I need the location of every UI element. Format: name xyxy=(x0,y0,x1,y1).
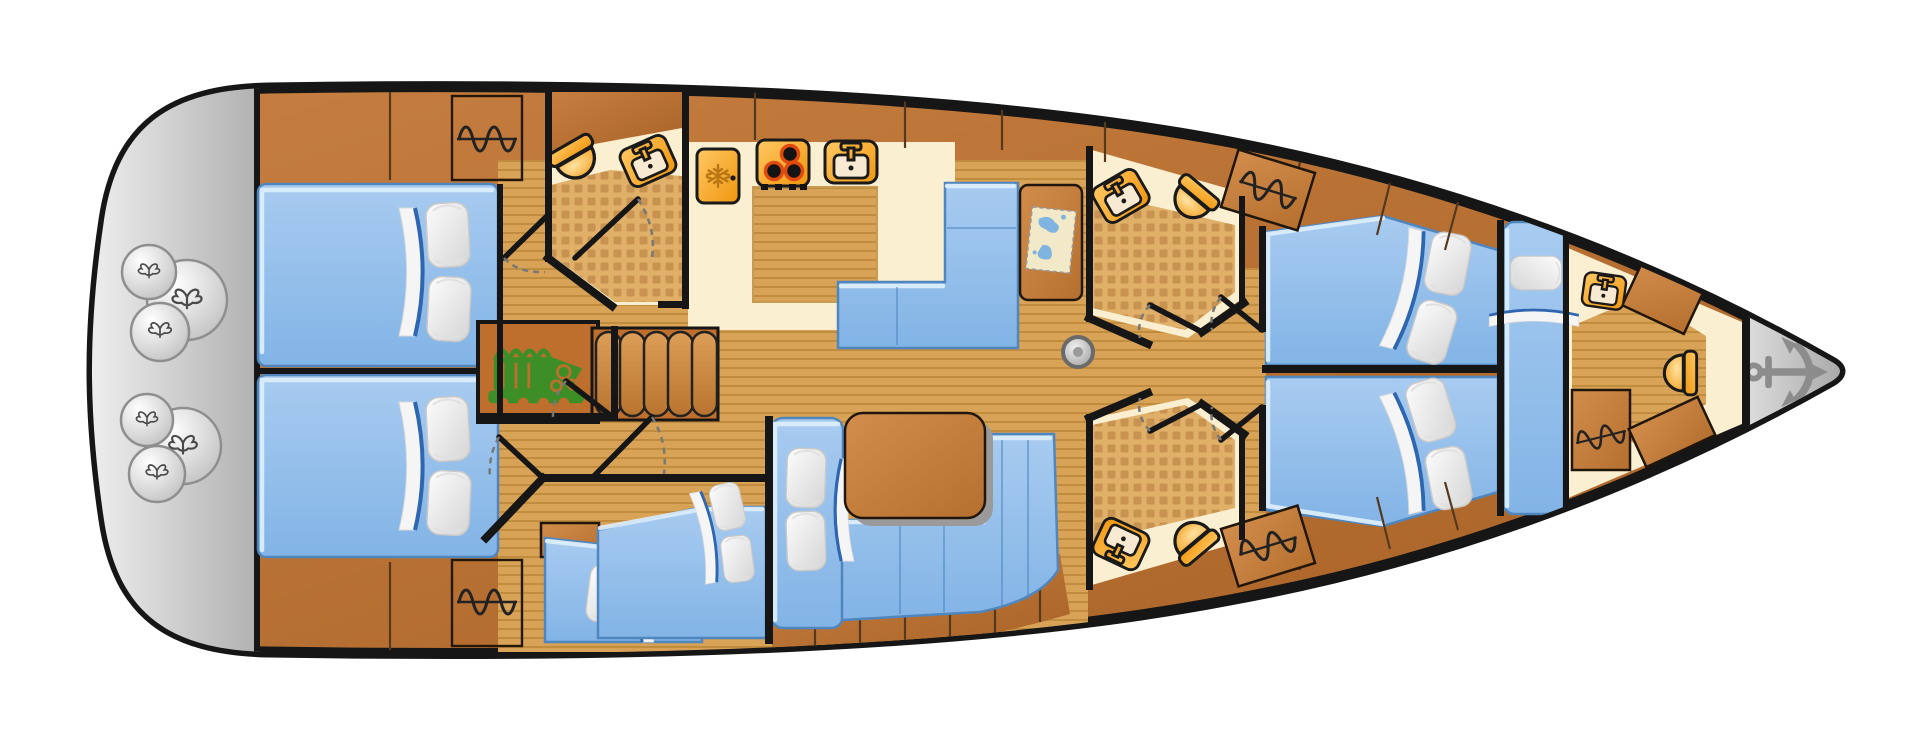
bow-head xyxy=(1568,248,1742,498)
stair-step xyxy=(692,332,717,416)
yacht-floorplan xyxy=(0,0,1920,731)
chart-map-icon xyxy=(1026,207,1076,273)
aft-cabin-starboard xyxy=(258,375,498,557)
fridge-icon xyxy=(697,149,739,203)
stair-step xyxy=(644,332,669,416)
mast-icon xyxy=(1063,337,1093,367)
aft-cabins-divider-wall xyxy=(258,368,500,374)
sofa-pillow xyxy=(786,511,827,571)
salon-sofa xyxy=(771,413,1058,628)
yacht-floorplan-page xyxy=(0,0,1920,731)
companionway-stairs xyxy=(592,328,718,420)
stair-step xyxy=(668,332,693,416)
berth-pillow xyxy=(1510,256,1561,290)
stove-icon xyxy=(757,140,809,190)
forward-cabin-starboard xyxy=(1266,374,1498,526)
stair-step xyxy=(620,332,645,416)
forward-cabin-port xyxy=(1266,216,1498,368)
engine-compartment xyxy=(478,322,598,422)
aft-cabin-port xyxy=(258,184,498,366)
sofa-pillow xyxy=(786,448,827,508)
dining-table xyxy=(845,413,985,518)
anchor-locker xyxy=(1747,312,1843,432)
washbasin-icon xyxy=(1581,271,1627,310)
galley-sink-icon xyxy=(825,141,877,183)
